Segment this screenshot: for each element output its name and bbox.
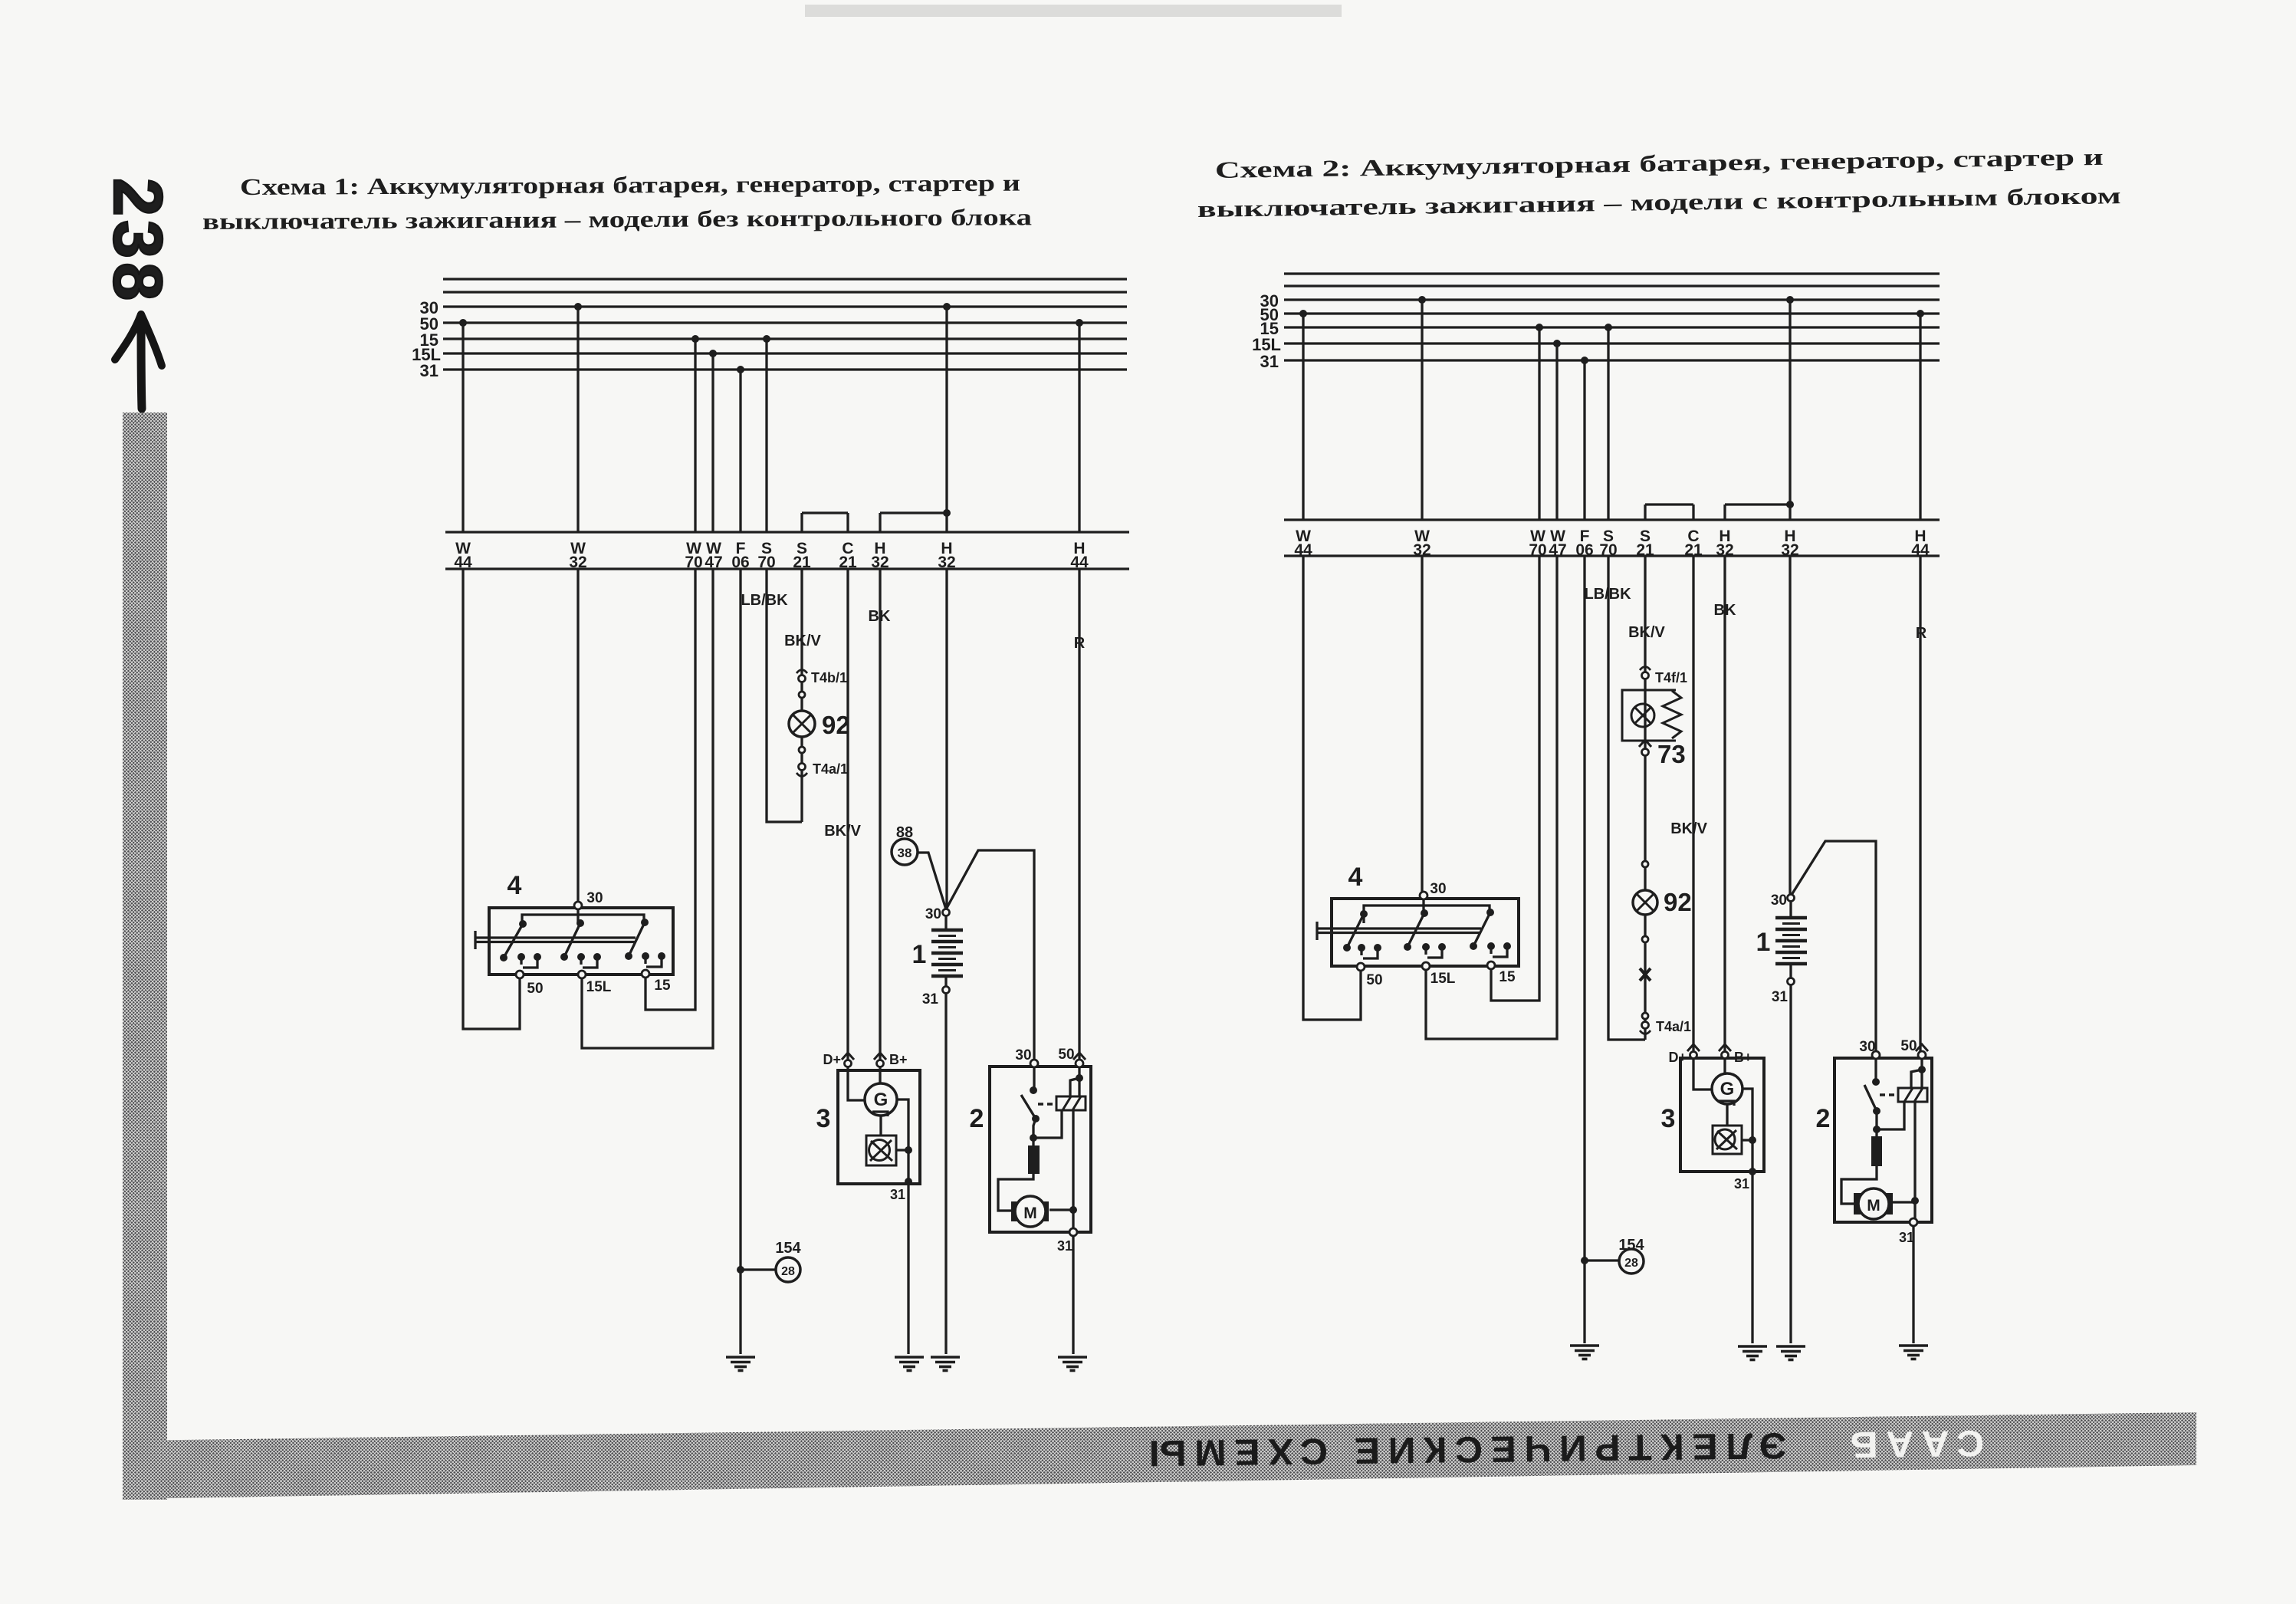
svg-text:BK/V: BK/V xyxy=(784,633,821,649)
svg-text:06: 06 xyxy=(731,554,749,571)
svg-text:31: 31 xyxy=(420,361,439,380)
svg-text:M: M xyxy=(1867,1197,1880,1215)
svg-text:T4a/1: T4a/1 xyxy=(1656,1019,1691,1034)
svg-text:70: 70 xyxy=(1529,541,1546,559)
svg-text:44: 44 xyxy=(1911,541,1930,559)
svg-text:M: M xyxy=(1023,1205,1037,1222)
svg-text:44: 44 xyxy=(1294,541,1312,559)
svg-text:BK/V: BK/V xyxy=(824,823,861,840)
svg-text:06: 06 xyxy=(1575,541,1593,559)
svg-text:31: 31 xyxy=(1057,1238,1072,1254)
svg-text:31: 31 xyxy=(922,991,939,1007)
svg-text:15L: 15L xyxy=(586,979,612,995)
svg-text:50: 50 xyxy=(1366,972,1382,988)
svg-text:T4b/1: T4b/1 xyxy=(811,670,847,685)
svg-text:32: 32 xyxy=(569,554,586,571)
svg-text:92: 92 xyxy=(822,711,850,739)
svg-text:2: 2 xyxy=(970,1104,984,1133)
svg-text:47: 47 xyxy=(705,554,722,571)
svg-text:50: 50 xyxy=(1900,1038,1917,1054)
svg-text:31: 31 xyxy=(1734,1176,1749,1191)
svg-text:4: 4 xyxy=(507,871,522,900)
svg-text:D+: D+ xyxy=(1668,1050,1687,1065)
svg-text:BK/V: BK/V xyxy=(1670,820,1707,837)
svg-text:32: 32 xyxy=(1716,541,1733,559)
svg-text:21: 21 xyxy=(839,554,857,571)
svg-text:T4f/1: T4f/1 xyxy=(1655,670,1687,685)
svg-text:92: 92 xyxy=(1664,888,1692,916)
svg-text:30: 30 xyxy=(925,906,941,922)
svg-text:BK: BK xyxy=(1714,602,1736,619)
svg-text:31: 31 xyxy=(1772,989,1789,1005)
svg-text:G: G xyxy=(874,1090,889,1110)
svg-text:LB/BK: LB/BK xyxy=(1584,586,1631,603)
svg-text:154: 154 xyxy=(775,1240,801,1257)
svg-text:2: 2 xyxy=(1816,1104,1831,1133)
svg-text:21: 21 xyxy=(1684,541,1703,559)
svg-text:B+: B+ xyxy=(889,1052,908,1067)
svg-text:44: 44 xyxy=(1070,554,1089,571)
svg-text:3: 3 xyxy=(1661,1104,1676,1133)
svg-text:D+: D+ xyxy=(823,1052,841,1067)
svg-text:50: 50 xyxy=(1058,1047,1074,1063)
svg-text:LB/BK: LB/BK xyxy=(741,592,788,609)
svg-text:32: 32 xyxy=(938,554,955,571)
svg-text:31: 31 xyxy=(890,1187,905,1202)
svg-text:30: 30 xyxy=(1015,1047,1031,1063)
svg-text:32: 32 xyxy=(871,554,889,571)
svg-text:BK: BK xyxy=(869,608,891,625)
svg-text:38: 38 xyxy=(898,846,912,860)
svg-text:R: R xyxy=(1916,625,1927,642)
svg-text:32: 32 xyxy=(1781,541,1798,559)
svg-text:G: G xyxy=(1720,1079,1735,1099)
svg-text:70: 70 xyxy=(685,554,702,571)
svg-text:47: 47 xyxy=(1549,541,1566,559)
svg-text:88: 88 xyxy=(896,824,913,841)
svg-text:70: 70 xyxy=(757,554,775,571)
svg-text:28: 28 xyxy=(781,1265,795,1278)
svg-text:28: 28 xyxy=(1624,1257,1638,1270)
svg-text:1: 1 xyxy=(912,940,927,969)
svg-text:50: 50 xyxy=(527,981,543,997)
svg-text:15: 15 xyxy=(654,978,671,994)
svg-text:31: 31 xyxy=(1260,352,1279,371)
svg-text:70: 70 xyxy=(1599,541,1617,559)
svg-text:Схема 1: Аккумуляторная батаре: Схема 1: Аккумуляторная батарея, генерат… xyxy=(240,170,1020,200)
svg-text:21: 21 xyxy=(1636,541,1654,559)
svg-text:30: 30 xyxy=(1771,892,1787,909)
svg-text:T4a/1: T4a/1 xyxy=(813,761,848,777)
svg-text:30: 30 xyxy=(1859,1039,1875,1055)
svg-text:15L: 15L xyxy=(1430,971,1456,987)
svg-text:44: 44 xyxy=(454,554,472,571)
svg-text:4: 4 xyxy=(1348,863,1363,892)
svg-text:154: 154 xyxy=(1618,1237,1644,1254)
svg-text:BK/V: BK/V xyxy=(1628,624,1665,641)
svg-text:B+: B+ xyxy=(1734,1050,1752,1065)
svg-text:1: 1 xyxy=(1756,928,1771,957)
svg-text:выключатель зажигания – модели: выключатель зажигания – модели без контр… xyxy=(202,204,1032,235)
svg-text:30: 30 xyxy=(586,890,603,906)
svg-text:3: 3 xyxy=(816,1104,831,1133)
svg-text:31: 31 xyxy=(1899,1230,1914,1245)
svg-text:21: 21 xyxy=(793,554,811,571)
svg-text:73: 73 xyxy=(1657,740,1686,768)
svg-text:32: 32 xyxy=(1413,541,1430,559)
svg-text:R: R xyxy=(1074,635,1086,652)
svg-text:238: 238 xyxy=(99,178,176,304)
svg-text:15: 15 xyxy=(1499,969,1516,985)
svg-text:30: 30 xyxy=(1430,881,1446,897)
